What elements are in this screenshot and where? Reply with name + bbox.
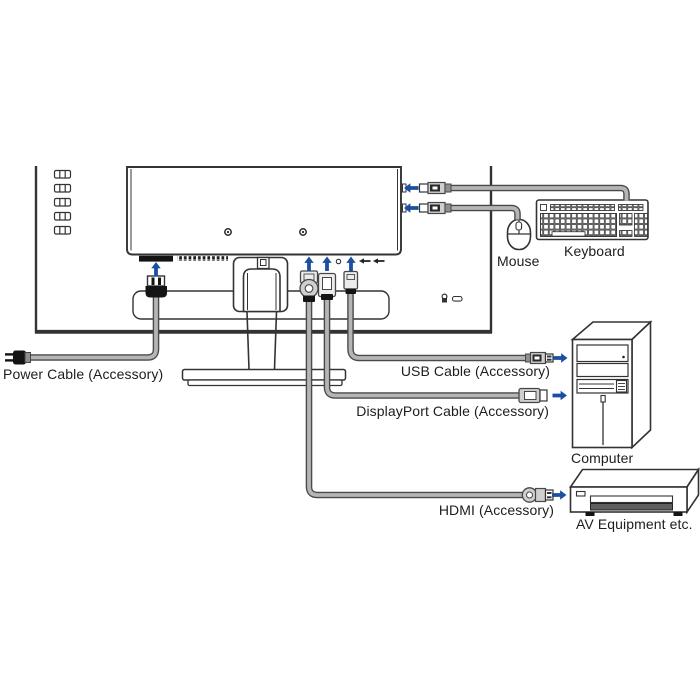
power-cable-label: Power Cable (Accessory) xyxy=(3,366,163,382)
lock-icon xyxy=(442,294,447,302)
mouse-cable xyxy=(420,203,518,220)
esc-key xyxy=(541,205,547,211)
connect-arrow-icon xyxy=(552,490,567,499)
av-equipment xyxy=(571,470,699,517)
connection-diagram: Power Cable (Accessory) USB Cable (Acces… xyxy=(0,0,700,700)
scroll-wheel xyxy=(516,222,522,230)
latch-slot xyxy=(453,297,463,302)
usb-a-connector-end xyxy=(526,353,554,364)
keyboard xyxy=(537,200,649,240)
usb-plug-mouse xyxy=(420,203,452,214)
tower-side xyxy=(632,322,651,448)
computer-tower xyxy=(573,322,651,448)
displayport-plug xyxy=(319,274,336,301)
drive-bay xyxy=(577,364,628,377)
port-mark-icons xyxy=(359,258,385,263)
vent-grille xyxy=(55,171,71,235)
power-button xyxy=(601,396,605,403)
av-equipment-label: AV Equipment etc. xyxy=(576,516,693,532)
power-inlet xyxy=(139,256,173,262)
power-plug xyxy=(146,276,168,298)
spacebar xyxy=(552,232,585,236)
av-top xyxy=(571,470,699,488)
stand-column xyxy=(247,312,249,369)
drive-bay xyxy=(577,345,628,362)
hdmi-cable-label: HDMI (Accessory) xyxy=(439,502,554,518)
vent-dots xyxy=(177,256,228,261)
power-cable xyxy=(5,276,167,365)
displayport-cable-label: DisplayPort Cable (Accessory) xyxy=(356,403,549,419)
disc-slot xyxy=(591,504,673,511)
usb-b-plug xyxy=(344,272,358,295)
nav-keys xyxy=(620,214,633,226)
disc-tray xyxy=(591,496,673,503)
stand-neck xyxy=(244,269,281,312)
connect-arrow-icon xyxy=(553,353,568,362)
mains-plug xyxy=(5,351,31,365)
stand-base xyxy=(183,370,346,381)
rear-panel xyxy=(127,167,401,255)
av-power-button xyxy=(577,492,586,497)
audio-port-icon xyxy=(336,259,340,263)
usb-plug-keyboard xyxy=(420,183,452,194)
connect-arrow-icon xyxy=(346,257,355,272)
stand-base-foot xyxy=(188,380,342,386)
connect-arrow-icon xyxy=(304,257,313,272)
keyboard-cable xyxy=(420,183,627,201)
displayport-connector-end xyxy=(519,389,547,403)
hdmi-connector-end xyxy=(522,488,553,502)
usb-cable-label: USB Cable (Accessory) xyxy=(401,363,550,379)
arrow-keys xyxy=(620,231,633,237)
connect-arrow-icon xyxy=(151,262,160,277)
numpad xyxy=(635,214,648,237)
mouse-label: Mouse xyxy=(497,253,540,269)
computer-label: Computer xyxy=(571,450,633,466)
diagram-artwork xyxy=(0,0,700,700)
keyboard-label: Keyboard xyxy=(564,243,625,259)
mouse xyxy=(508,220,531,250)
connect-arrow-icon xyxy=(322,257,331,272)
connect-arrow-icon xyxy=(553,391,568,400)
